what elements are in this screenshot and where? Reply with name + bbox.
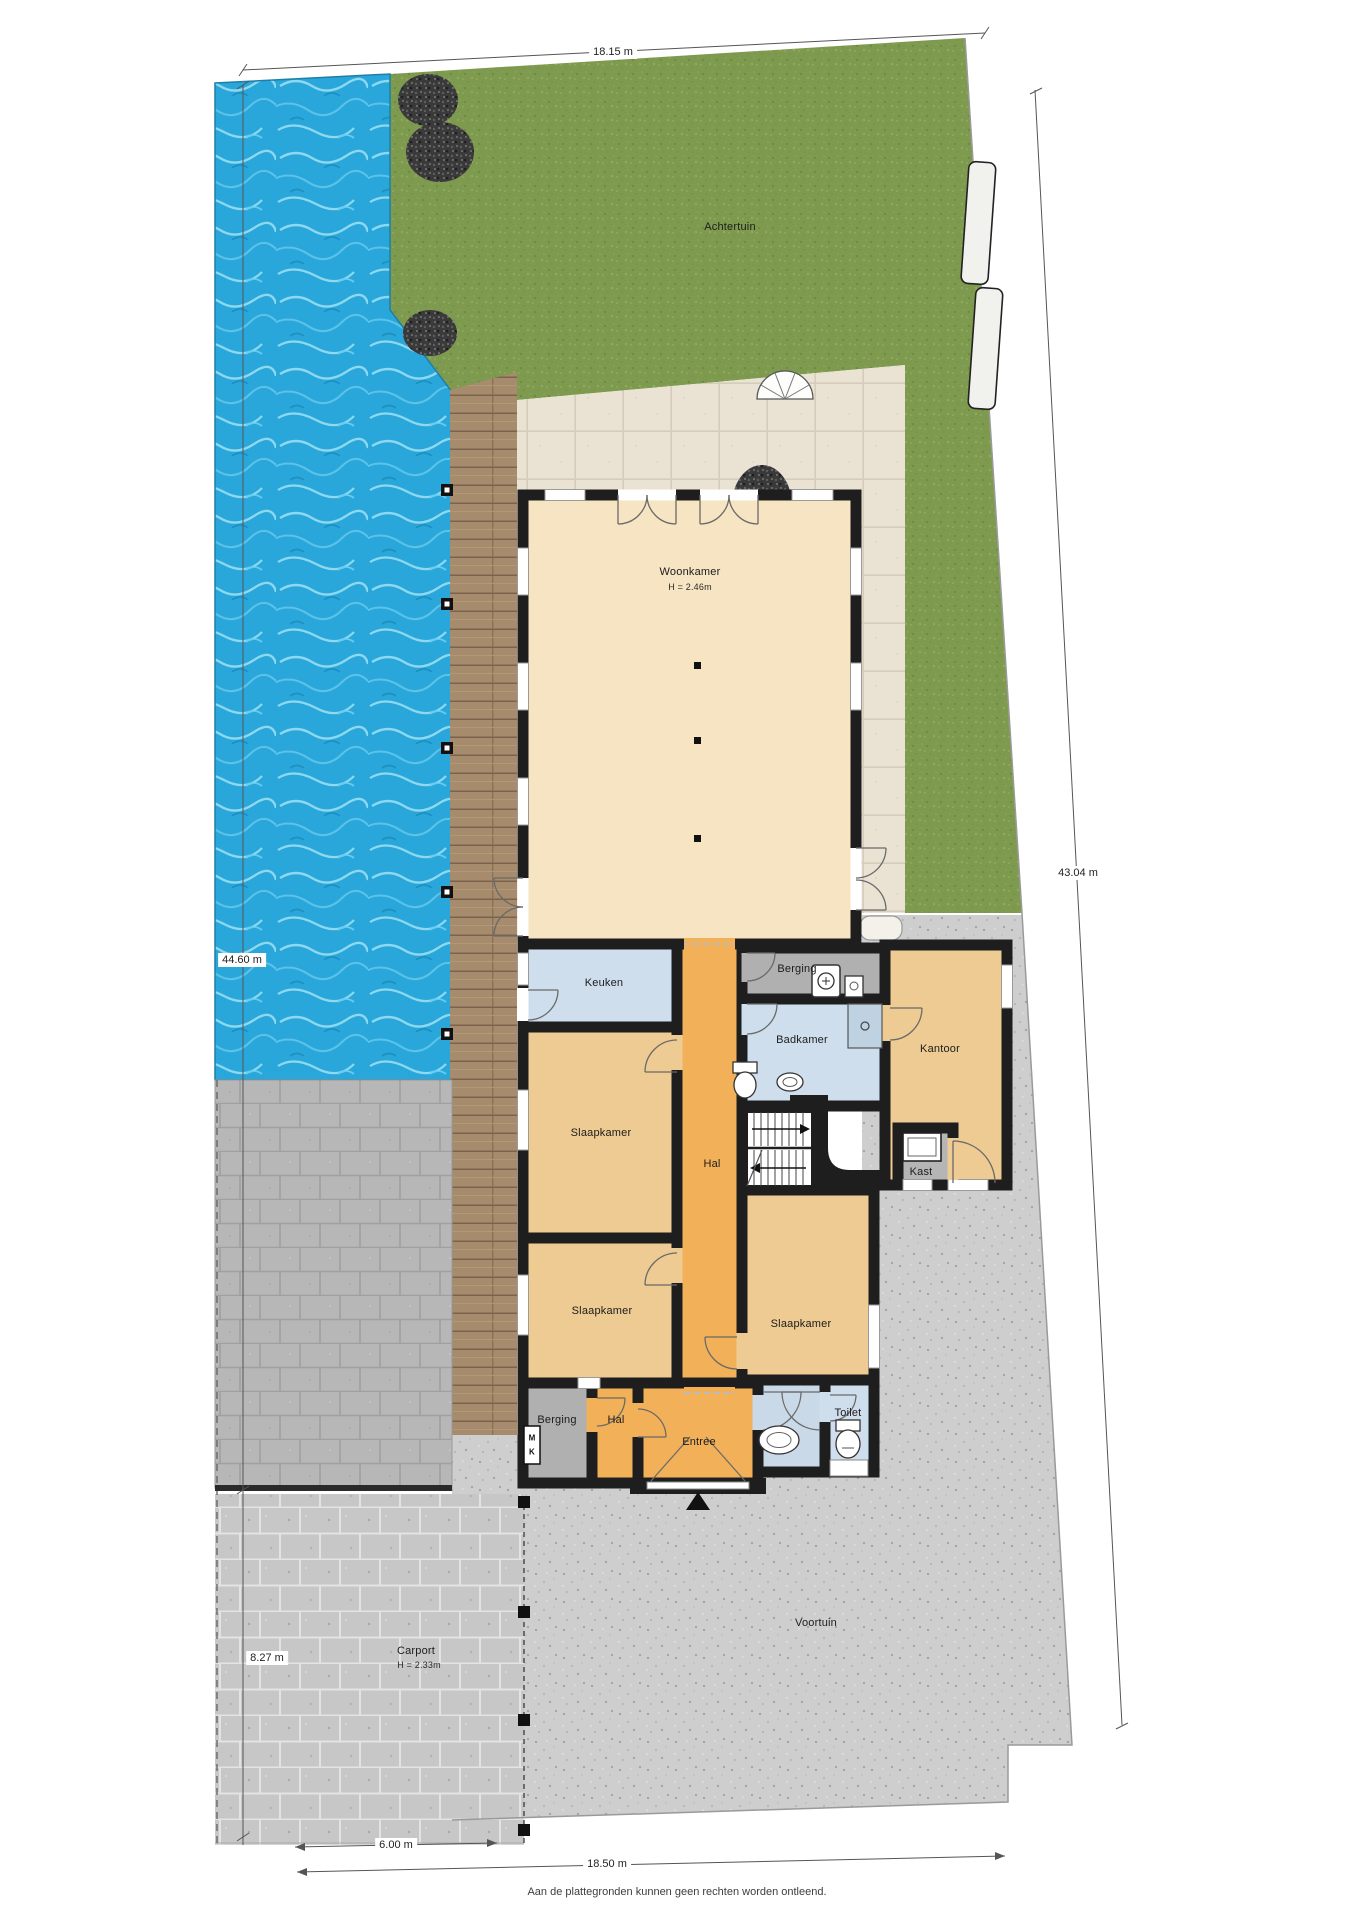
label-bedroom-1: Slaapkamer (571, 1127, 632, 1139)
label-office: Kantoor (920, 1043, 960, 1055)
label-bedroom-2: Slaapkamer (572, 1305, 633, 1317)
room-living (523, 495, 856, 944)
label-entrance: Entree (682, 1436, 716, 1448)
label-toilet: Toilet (835, 1407, 862, 1419)
label-carport: Carport (397, 1645, 435, 1657)
toilet-icon (836, 1420, 860, 1458)
dimension-right-depth: 43.04 m (1054, 866, 1102, 880)
label-storage-middle: Berging (777, 963, 816, 975)
bathroom-toilet-icon (733, 1062, 757, 1098)
label-living-room: Woonkamer (660, 566, 721, 578)
label-hall-main: Hal (703, 1158, 720, 1170)
label-meter-m: M (529, 1434, 536, 1443)
disclaimer-text: Aan de plattegronden kunnen geen rechten… (527, 1886, 826, 1898)
floorplan-page: Achtertuin Voortuin Carport H = 2.33m Wo… (0, 0, 1358, 1920)
room-washroom (758, 1380, 825, 1472)
staircase (747, 1112, 812, 1186)
dimension-bottom-width: 18.50 m (583, 1857, 631, 1871)
label-kitchen: Keuken (585, 977, 624, 989)
label-bedroom-3: Slaapkamer (771, 1318, 832, 1330)
dimension-carport-width: 6.00 m (375, 1838, 417, 1852)
washroom-basin-icon (759, 1426, 799, 1454)
bathroom-sink-icon (777, 1073, 803, 1091)
label-carport-height: H = 2.33m (397, 1660, 441, 1670)
label-front-garden: Voortuin (795, 1617, 837, 1629)
label-storage-front: Berging (537, 1414, 576, 1426)
meter-cupboard-box (524, 1426, 540, 1464)
boiler-icon (845, 976, 863, 997)
side-block-paving (215, 1080, 452, 1488)
label-back-garden: Achtertuin (704, 221, 756, 233)
shower-icon (848, 1004, 882, 1048)
label-hall-front: Hal (607, 1414, 624, 1426)
label-bathroom: Badkamer (776, 1034, 828, 1046)
room-bedroom-3 (742, 1190, 874, 1380)
label-living-room-height: H = 2.46m (668, 582, 712, 592)
siteplan-drawing (0, 0, 1358, 1920)
dimension-carport-depth: 8.27 m (246, 1651, 288, 1665)
terrace-bench (860, 916, 902, 940)
carport-paving (215, 1494, 524, 1845)
dimension-left-depth: 44.60 m (218, 953, 266, 967)
label-closet: Kast (910, 1166, 933, 1178)
dimension-top-width: 18.15 m (589, 45, 637, 59)
label-meter-k: K (529, 1448, 535, 1457)
closet-unit-icon (903, 1133, 941, 1161)
wooden-deck (450, 372, 517, 1435)
